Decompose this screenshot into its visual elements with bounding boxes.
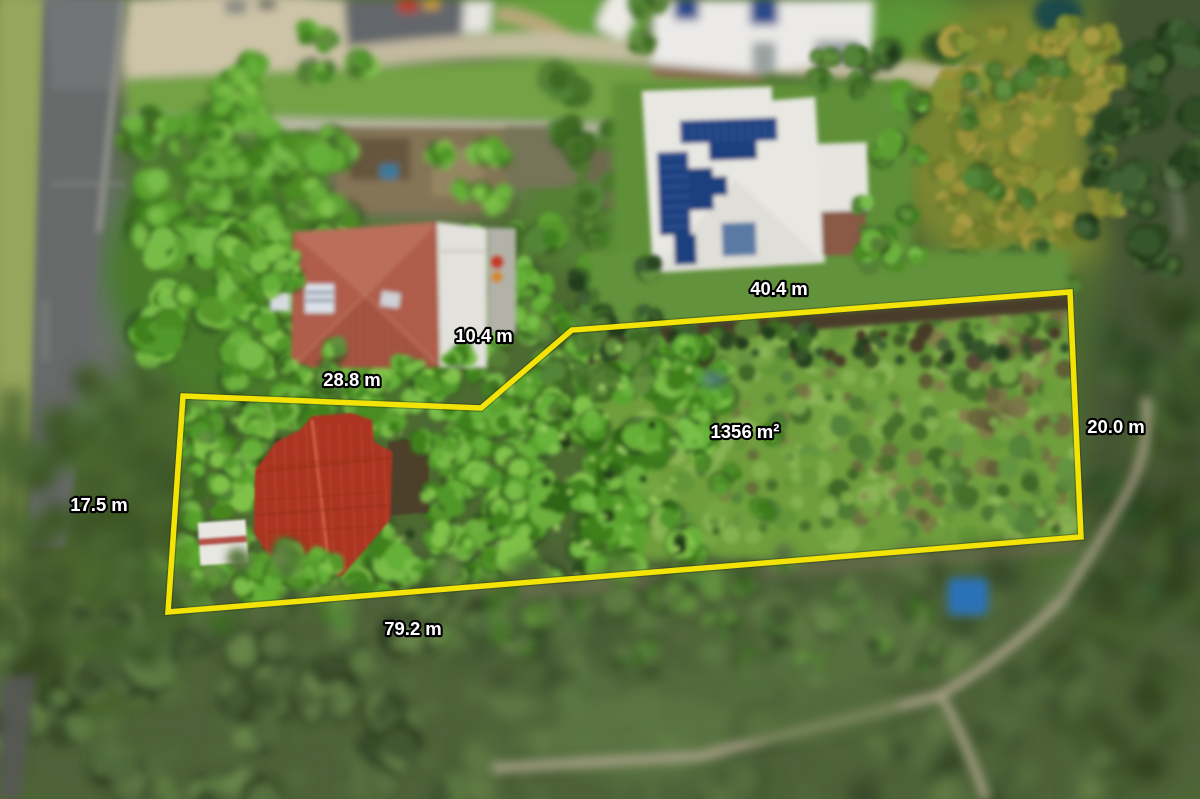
- svg-text:17.5 m: 17.5 m: [70, 494, 128, 515]
- svg-text:1356 m²: 1356 m²: [711, 421, 780, 442]
- svg-text:20.0 m: 20.0 m: [1087, 416, 1145, 437]
- svg-text:10.4 m: 10.4 m: [455, 325, 513, 346]
- svg-text:79.2 m: 79.2 m: [384, 618, 442, 639]
- svg-text:28.8 m: 28.8 m: [323, 369, 381, 390]
- svg-text:40.4 m: 40.4 m: [750, 278, 808, 299]
